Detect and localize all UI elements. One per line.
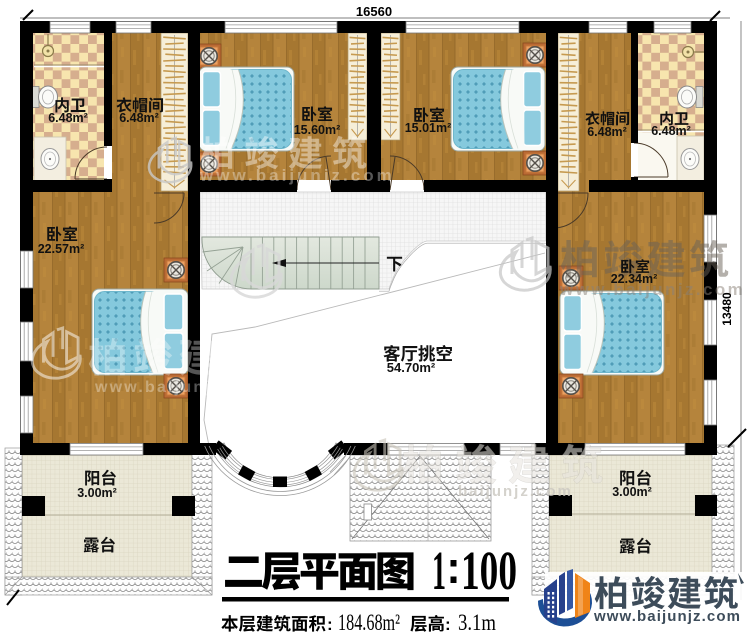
- svg-text:22.57m²: 22.57m²: [38, 242, 85, 256]
- svg-text:1: 1: [432, 540, 446, 601]
- svg-text:16560: 16560: [356, 4, 392, 19]
- svg-text:6.48m²: 6.48m²: [651, 124, 691, 138]
- svg-text:6.48m²: 6.48m²: [119, 111, 159, 125]
- svg-text:15.60m²: 15.60m²: [294, 123, 341, 137]
- svg-text:184.68m²: 184.68m²: [338, 610, 400, 635]
- svg-text:13480: 13480: [720, 292, 734, 326]
- svg-text:www.baijunjz.com: www.baijunjz.com: [199, 166, 395, 185]
- svg-text::: :: [327, 615, 333, 634]
- svg-text:www.baijunjz.com: www.baijunjz.com: [593, 608, 741, 625]
- svg-text::: :: [445, 615, 451, 634]
- svg-text:6.48m²: 6.48m²: [48, 111, 88, 125]
- svg-text:3.00m²: 3.00m²: [77, 486, 117, 500]
- svg-text:baijunjz.com: baijunjz.com: [458, 483, 573, 500]
- svg-text:22.34m²: 22.34m²: [611, 272, 658, 286]
- svg-text:6.48m²: 6.48m²: [587, 125, 627, 139]
- svg-text:www.baijunjz.com: www.baijunjz.com: [94, 379, 268, 396]
- svg-text:3.1m: 3.1m: [458, 610, 496, 635]
- svg-text:15.01m²: 15.01m²: [405, 121, 452, 135]
- svg-text:3.00m²: 3.00m²: [612, 485, 652, 499]
- svg-text:54.70m²: 54.70m²: [387, 360, 436, 375]
- svg-text:100: 100: [461, 540, 517, 601]
